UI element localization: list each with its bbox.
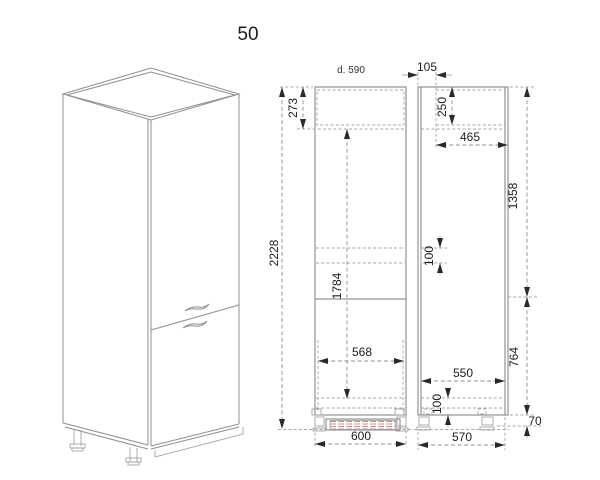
dim-top-section: 273 <box>286 98 300 118</box>
dim-interior-width: 568 <box>352 345 372 359</box>
page-title: 50 <box>237 24 258 45</box>
dim-interior-depth: 465 <box>460 130 480 144</box>
upper-door-handle <box>185 304 209 311</box>
dim-clear-depth: 550 <box>453 366 473 380</box>
dim-lower-height: 764 <box>507 347 521 367</box>
dim-back-offset: 105 <box>417 60 437 74</box>
front-view-dimensions: 2228 273 1784 568 600 <box>267 87 406 447</box>
dim-top-compartment: 250 <box>435 97 449 117</box>
dim-overall-width: 600 <box>351 429 371 443</box>
technical-drawing-page: 50 <box>0 0 600 480</box>
dim-foot-height: 70 <box>528 414 542 428</box>
dim-shelf-clearance: 100 <box>422 246 436 266</box>
dim-overall-height: 2228 <box>267 239 281 266</box>
dim-carcass-depth: 570 <box>452 430 472 444</box>
side-view-dimensions: d. 590 105 250 465 100 550 100 570 <box>337 60 542 450</box>
depth-label: d. 590 <box>337 65 365 76</box>
cabinet-3d-view <box>63 68 243 465</box>
dim-upper-height: 1358 <box>506 182 520 209</box>
front-elevation-view <box>278 87 412 431</box>
dim-door-height: 1784 <box>330 272 344 299</box>
cabinet-drawing: 50 <box>0 0 600 480</box>
dim-bottom-clearance: 100 <box>430 394 444 414</box>
lower-door-handle <box>183 321 207 328</box>
